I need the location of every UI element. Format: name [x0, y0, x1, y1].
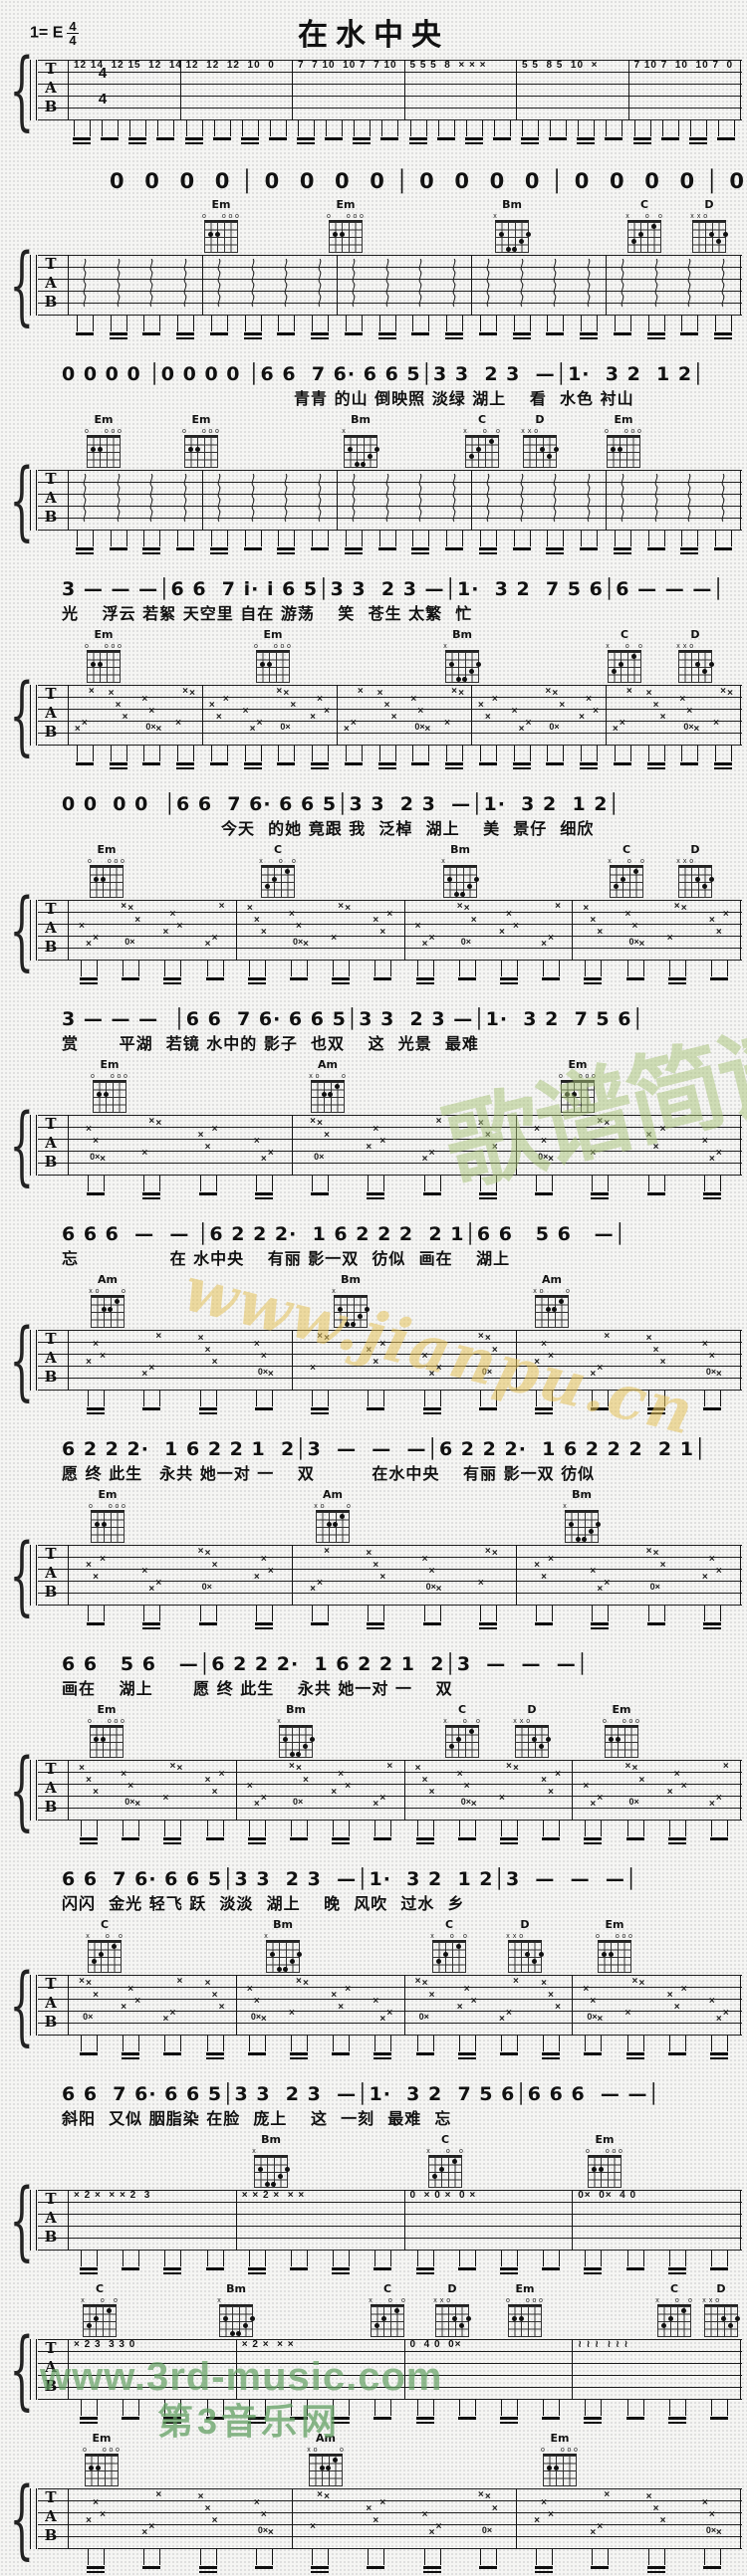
- note-beam: [87, 2571, 105, 2573]
- note-stem: [627, 961, 628, 976]
- finger-dot: [296, 1752, 301, 1757]
- note-stem: [704, 1176, 705, 1191]
- note-beam: [311, 1192, 329, 1195]
- pick-x-mark: ×: [86, 1979, 92, 1989]
- open-string-marker: o: [584, 2148, 592, 2155]
- note-beam: [591, 1407, 609, 1410]
- pick-x-mark: ×: [310, 1117, 316, 1127]
- note-beam: [714, 767, 732, 769]
- note-stem: [164, 2036, 165, 2051]
- note-stem: [563, 316, 564, 331]
- chord-grid-edge: [476, 867, 477, 898]
- chord-diagram: Cxoo: [78, 2283, 122, 2337]
- finger-dot: [208, 232, 213, 237]
- chord-name: Bm: [560, 1489, 604, 1501]
- note-stem: [374, 961, 375, 976]
- chord-diagram: Emoooo: [88, 1059, 131, 1113]
- chord-name: Bm: [274, 1704, 318, 1716]
- chord-grid-edge: [118, 2456, 119, 2486]
- note-beam: [647, 1192, 665, 1195]
- note-stem: [681, 316, 682, 331]
- note-beam: [210, 332, 228, 335]
- pick-x-mark: ×: [653, 1346, 659, 1356]
- note-beam: [80, 1842, 98, 1844]
- finger-dot: [631, 239, 636, 244]
- note-stem: [475, 1821, 476, 1836]
- measure-barline: [68, 685, 69, 746]
- chord-grid-edge: [123, 867, 124, 898]
- note-stem: [159, 531, 160, 546]
- pick-x-mark: ×: [604, 1579, 610, 1589]
- note-stem: [164, 961, 165, 976]
- note-stem: [440, 1176, 441, 1191]
- note-beam: [580, 337, 598, 339]
- pick-x-mark: ×: [723, 910, 729, 920]
- chord-grid-edge: [329, 252, 363, 253]
- melody-notes-line: 6 6 6 — — │6 2 2 2· 1 6 2 2 2 2 1│6 6 5 …: [62, 1224, 747, 1246]
- note-beam: [80, 2052, 98, 2055]
- pick-x-mark: ×: [205, 1776, 211, 1786]
- note-stem: [278, 531, 279, 546]
- note-stem: [245, 746, 246, 761]
- chord-diagram: Amxoo: [530, 1274, 574, 1328]
- finger-dot: [592, 2167, 597, 2172]
- chord-name: D: [503, 1919, 547, 1931]
- finger-dot: [611, 447, 616, 452]
- pick-x-mark: ×: [674, 1770, 680, 1780]
- note-stem: [328, 316, 329, 331]
- note-stem: [93, 531, 94, 546]
- tab-number-cell: ≀ ≀ ≀ ≀ ≀ ≀: [578, 2339, 736, 2350]
- note-stem: [180, 961, 181, 976]
- muted-string-marker: x: [262, 1933, 270, 1940]
- note-stem: [459, 961, 460, 976]
- measure-barline: [292, 1330, 293, 1391]
- note-stem: [200, 2549, 201, 2565]
- open-string-marker: o: [673, 2297, 681, 2304]
- pick-x-mark: ×: [358, 687, 364, 697]
- note-stem: [249, 2251, 250, 2266]
- pick-x-mark: ×: [457, 2003, 463, 2013]
- pick-x-mark: ×: [660, 2516, 666, 2526]
- system-barline: [30, 255, 37, 316]
- pick-x-mark: ×: [597, 1364, 603, 1374]
- tab-staff-system: {TAB× 2 × × × 2 3× × 2 × × ×0 × 0 × 0 ×0…: [38, 2190, 742, 2277]
- pick-x-mark: ×: [141, 2528, 147, 2538]
- tab-letter: A: [44, 2211, 58, 2226]
- pick-x-mark: ×: [660, 1358, 666, 1368]
- note-stem: [446, 316, 447, 331]
- note-stem: [606, 120, 607, 136]
- note-stem: [333, 2400, 334, 2416]
- note-stem: [312, 1176, 313, 1191]
- note-beam: [297, 137, 315, 140]
- note-stem: [278, 746, 279, 761]
- open-string-marker: o: [461, 1718, 469, 1725]
- open-x-mark: 0×: [706, 1368, 716, 1377]
- pick-x-mark: ×: [541, 1573, 547, 1583]
- note-stem: [615, 316, 616, 331]
- lyrics-line: 青青 的山 倒映照 淡绿 湖上 看 水色 衬山: [294, 389, 747, 408]
- note-stem: [143, 746, 144, 761]
- pick-x-mark: ×: [317, 2490, 323, 2500]
- note-stem: [424, 1606, 425, 1621]
- pick-x-mark: ×: [373, 1561, 378, 1571]
- tab-letter: T: [44, 2192, 58, 2207]
- pick-x-mark: ×: [713, 719, 719, 729]
- tab-letter: A: [44, 1781, 58, 1796]
- strum-stroke-mark: [147, 259, 155, 316]
- note-beam: [332, 982, 350, 984]
- chord-grid-edge: [598, 1972, 631, 1973]
- finger-dot: [554, 447, 559, 452]
- muted-string-marker: x: [461, 428, 469, 435]
- pick-x-mark: ×: [379, 2015, 385, 2025]
- note-beam: [290, 977, 308, 980]
- measure-barline: [516, 1545, 517, 1606]
- open-string-marker: o: [564, 1288, 572, 1295]
- note-stem: [159, 316, 160, 331]
- pick-x-mark: ×: [639, 1776, 645, 1786]
- chord-grid-edge: [219, 2336, 253, 2337]
- note-stem: [265, 2251, 266, 2266]
- note-stem: [81, 2036, 82, 2051]
- pick-x-mark: ×: [559, 701, 565, 711]
- note-stem: [207, 2400, 208, 2416]
- pick-x-mark: ×: [373, 1800, 378, 1810]
- note-stem: [704, 1606, 705, 1621]
- pick-x-mark: ×: [679, 695, 685, 705]
- note-beam: [710, 2057, 728, 2059]
- chord-grid-edge: [610, 897, 643, 898]
- chord-grid-edge: [344, 467, 377, 468]
- tab-letter: A: [44, 1566, 58, 1581]
- note-stem: [143, 316, 144, 331]
- finger-dot: [87, 2323, 92, 2328]
- note-stem: [207, 2251, 208, 2266]
- note-stem: [627, 2036, 628, 2051]
- note-beam: [142, 762, 160, 765]
- finger-dot: [278, 2174, 283, 2179]
- finger-dot: [98, 662, 103, 667]
- finger-dot: [91, 662, 96, 667]
- pick-x-mark: ×: [324, 1131, 330, 1141]
- pick-x-mark: ×: [212, 2516, 218, 2526]
- system-brace: {: [10, 1103, 19, 1188]
- note-beam: [535, 1407, 553, 1410]
- chord-grid-edge: [349, 1512, 350, 1543]
- system-barline: [30, 900, 37, 961]
- note-stem: [333, 2036, 334, 2051]
- strum-stroke-mark: [181, 474, 189, 531]
- note-beam: [199, 2566, 217, 2569]
- note-stem: [143, 2549, 144, 2565]
- pick-x-mark: ×: [478, 701, 484, 711]
- note-stem: [530, 316, 531, 331]
- open-string-marker: o: [314, 1073, 322, 1080]
- note-stem: [514, 746, 515, 761]
- note-beam: [87, 1192, 105, 1195]
- note-stem: [104, 2549, 105, 2565]
- pick-x-mark: ×: [296, 1764, 302, 1774]
- note-beam: [479, 1627, 497, 1629]
- chord-grid-edge: [711, 867, 712, 898]
- note-beam: [680, 762, 698, 765]
- note-stem: [143, 1391, 144, 1406]
- pick-x-mark: ×: [205, 1549, 211, 1559]
- note-beam: [542, 1837, 560, 1840]
- chord-diagram: Dxxo: [699, 2283, 743, 2337]
- finger-dot: [619, 662, 623, 667]
- finger-dot: [250, 2316, 255, 2321]
- note-stem: [368, 1391, 369, 1406]
- chord-grid-edge: [256, 682, 290, 683]
- pick-x-mark: ×: [373, 1358, 378, 1368]
- strum-stroke-mark: [249, 474, 257, 531]
- note-beam: [176, 547, 194, 550]
- note-stem: [566, 120, 567, 136]
- pick-x-mark: ×: [155, 1119, 161, 1129]
- open-x-mark: 0×: [124, 1798, 134, 1807]
- pick-x-mark: ×: [590, 1997, 596, 2007]
- tab-letter: A: [44, 1996, 58, 2011]
- chord-name: D: [673, 844, 717, 856]
- chord-name: Em: [86, 1489, 129, 1501]
- open-x-mark: 0×: [683, 723, 693, 732]
- chord-diagram: Cxoo: [256, 844, 300, 898]
- pick-x-mark: ×: [709, 1997, 715, 2007]
- measure-barline: [292, 1115, 293, 1176]
- chord-name: C: [652, 2283, 696, 2295]
- note-stem: [368, 1606, 369, 1621]
- note-stem: [145, 120, 146, 136]
- chord-diagram: Amxoo: [311, 1489, 355, 1543]
- finger-dot: [532, 1959, 537, 1964]
- note-stem: [643, 2400, 644, 2416]
- pick-x-mark: ×: [127, 1985, 133, 1995]
- tab-letter: T: [44, 2341, 58, 2356]
- note-stem: [395, 316, 396, 331]
- pick-x-mark: ×: [247, 1985, 253, 1995]
- pick-x-mark: ×: [276, 687, 282, 697]
- pick-x-mark: ×: [254, 1137, 260, 1147]
- pick-x-mark: ×: [212, 934, 218, 944]
- chord-grid-edge: [316, 1542, 350, 1543]
- note-beam: [703, 2566, 721, 2569]
- note-stem: [261, 531, 262, 546]
- note-beam: [500, 2267, 518, 2270]
- pick-x-mark: ×: [189, 689, 195, 699]
- note-beam: [479, 552, 497, 554]
- pick-x-mark: ×: [219, 902, 225, 912]
- chord-grid: xxo: [515, 1725, 549, 1758]
- tab-letter: A: [44, 491, 58, 506]
- pick-x-mark: ×: [331, 934, 337, 944]
- chord-grid-edge: [124, 1297, 124, 1328]
- note-stem: [459, 1821, 460, 1836]
- note-stem: [536, 1176, 537, 1191]
- pick-x-mark: ×: [436, 1117, 442, 1127]
- chord-grid-edge: [478, 652, 479, 683]
- note-beam: [87, 1407, 105, 1410]
- note-stem: [328, 746, 329, 761]
- chord-grid: oooo: [605, 1725, 638, 1758]
- note-beam: [244, 332, 262, 335]
- chord-grid-edge: [217, 437, 218, 468]
- pick-x-mark: ×: [613, 725, 619, 735]
- lyrics-line: 忘 在 水中央 有丽 影一双 彷似 画在 湖上: [62, 1249, 747, 1268]
- note-beam: [423, 1412, 441, 1414]
- note-beam: [142, 1192, 160, 1195]
- finger-dot: [512, 2316, 517, 2321]
- pick-x-mark: ×: [254, 1997, 260, 2007]
- note-stem: [648, 1176, 649, 1191]
- note-beam: [546, 547, 564, 550]
- pick-x-mark: ×: [121, 902, 126, 912]
- chord-grid-edge: [657, 2336, 691, 2337]
- strum-stroke-mark: [484, 259, 492, 316]
- open-string-marker: o: [180, 428, 188, 435]
- muted-string-marker: x: [623, 213, 631, 220]
- pick-x-mark: ×: [499, 928, 505, 938]
- chord-name: Am: [304, 2433, 348, 2445]
- open-x-mark: 0×: [538, 1153, 548, 1162]
- note-stem: [417, 2251, 418, 2266]
- pick-x-mark: ×: [415, 922, 421, 932]
- pick-x-mark: ×: [709, 1155, 715, 1165]
- open-string-marker: o: [481, 428, 489, 435]
- note-beam: [176, 332, 194, 335]
- finger-dot: [661, 2323, 666, 2328]
- measure-barline: [68, 1330, 69, 1391]
- note-stem: [480, 316, 481, 331]
- note-beam: [710, 1837, 728, 1840]
- note-beam: [626, 977, 644, 980]
- note-beam: [580, 547, 598, 550]
- pick-x-mark: ×: [366, 2504, 372, 2514]
- note-beam: [142, 552, 160, 554]
- chord-grid-edge: [428, 2187, 462, 2188]
- pick-x-mark: ×: [534, 2516, 540, 2526]
- system-brace: {: [10, 458, 19, 543]
- pick-x-mark: ×: [254, 2498, 260, 2508]
- note-beam: [367, 1197, 384, 1199]
- chord-diagram: Cxoo: [603, 629, 646, 683]
- note-stem: [354, 120, 355, 136]
- finger-dot: [499, 232, 504, 237]
- note-stem: [346, 746, 347, 761]
- pick-x-mark: ×: [310, 1585, 316, 1595]
- note-stem: [501, 1821, 502, 1836]
- note-beam: [206, 1837, 224, 1840]
- note-beam: [345, 332, 363, 335]
- note-beam: [73, 142, 91, 144]
- measure-barline: [740, 1115, 741, 1176]
- note-beam: [163, 1837, 181, 1840]
- finger-dot: [333, 1522, 338, 1527]
- pick-x-mark: ×: [492, 695, 498, 705]
- chord-grid: xxo: [435, 2304, 469, 2337]
- note-stem: [592, 1176, 593, 1191]
- chord-grid-edge: [299, 1942, 300, 1973]
- tab-number-cell: 0 × 0 × 0 ×: [410, 2190, 569, 2201]
- melody-notes-line: 6 6 7 6· 6 6 5│3 3 2 3 —│1· 3 2 7 5 6│6 …: [62, 2084, 747, 2106]
- note-beam: [210, 762, 228, 765]
- finger-dot: [258, 2167, 263, 2172]
- strum-stroke-mark: [215, 259, 223, 316]
- pick-x-mark: ×: [632, 1764, 638, 1774]
- chord-diagram-row: EmooooAmxooBmx: [0, 1491, 747, 1543]
- pick-x-mark: ×: [205, 2504, 211, 2514]
- pick-x-mark: ×: [415, 1764, 421, 1774]
- note-beam: [80, 1837, 98, 1840]
- note-stem: [270, 120, 271, 136]
- pick-x-mark: ×: [681, 904, 687, 914]
- chord-diagram: Cxoo: [440, 1704, 484, 1758]
- system-barline: [30, 2339, 37, 2400]
- chord-grid-edge: [362, 222, 363, 253]
- tab-staff: {TAB: [38, 255, 742, 316]
- pick-x-mark: ×: [198, 1131, 204, 1141]
- note-stem: [328, 531, 329, 546]
- pick-x-mark: ×: [681, 1985, 687, 1995]
- note-stem: [480, 1176, 481, 1191]
- open-string-marker: o: [617, 2148, 624, 2155]
- chord-grid-edge: [543, 2485, 577, 2486]
- pick-x-mark: ×: [121, 2003, 126, 2013]
- chord-diagram: Amxoo: [86, 1274, 129, 1328]
- note-stem: [734, 120, 735, 136]
- pick-x-mark: ×: [155, 2490, 161, 2500]
- note-stem: [88, 1606, 89, 1621]
- measure-barline: [236, 1975, 237, 2036]
- note-stem: [123, 2400, 124, 2416]
- note-stem: [559, 2400, 560, 2416]
- pick-x-mark: ×: [410, 695, 416, 705]
- note-stem: [180, 2036, 181, 2051]
- chord-diagram: Emoooo: [85, 844, 128, 898]
- strum-stroke-mark: [685, 474, 693, 531]
- pick-x-mark: ×: [422, 1979, 428, 1989]
- note-stem: [328, 1391, 329, 1406]
- note-beam: [277, 332, 295, 335]
- pick-x-mark: ×: [597, 1585, 603, 1595]
- note-stem: [294, 316, 295, 331]
- pick-x-mark: ×: [478, 1119, 484, 1129]
- note-stem: [466, 120, 467, 136]
- note-stem: [410, 120, 411, 136]
- note-beam: [80, 2272, 98, 2274]
- system-brace: {: [10, 2327, 19, 2413]
- chord-grid: oooo: [329, 220, 363, 253]
- pick-x-mark: ×: [216, 713, 222, 723]
- open-x-mark: 0×: [251, 2013, 261, 2022]
- finger-dot: [668, 2316, 673, 2321]
- pick-x-mark: ×: [261, 2015, 267, 2025]
- tab-letter: A: [44, 1136, 58, 1151]
- note-stem: [440, 1391, 441, 1406]
- pick-x-mark: ×: [162, 1794, 168, 1804]
- chord-diagram: Dxxo: [673, 844, 717, 898]
- pick-x-mark: ×: [254, 1340, 260, 1350]
- pick-x-mark: ×: [331, 1991, 337, 2001]
- open-string-marker: o: [524, 1718, 532, 1725]
- pick-x-mark: ×: [597, 2015, 603, 2025]
- note-stem: [126, 746, 127, 761]
- note-stem: [664, 1391, 665, 1406]
- note-beam: [373, 2057, 391, 2059]
- note-stem: [138, 2400, 139, 2416]
